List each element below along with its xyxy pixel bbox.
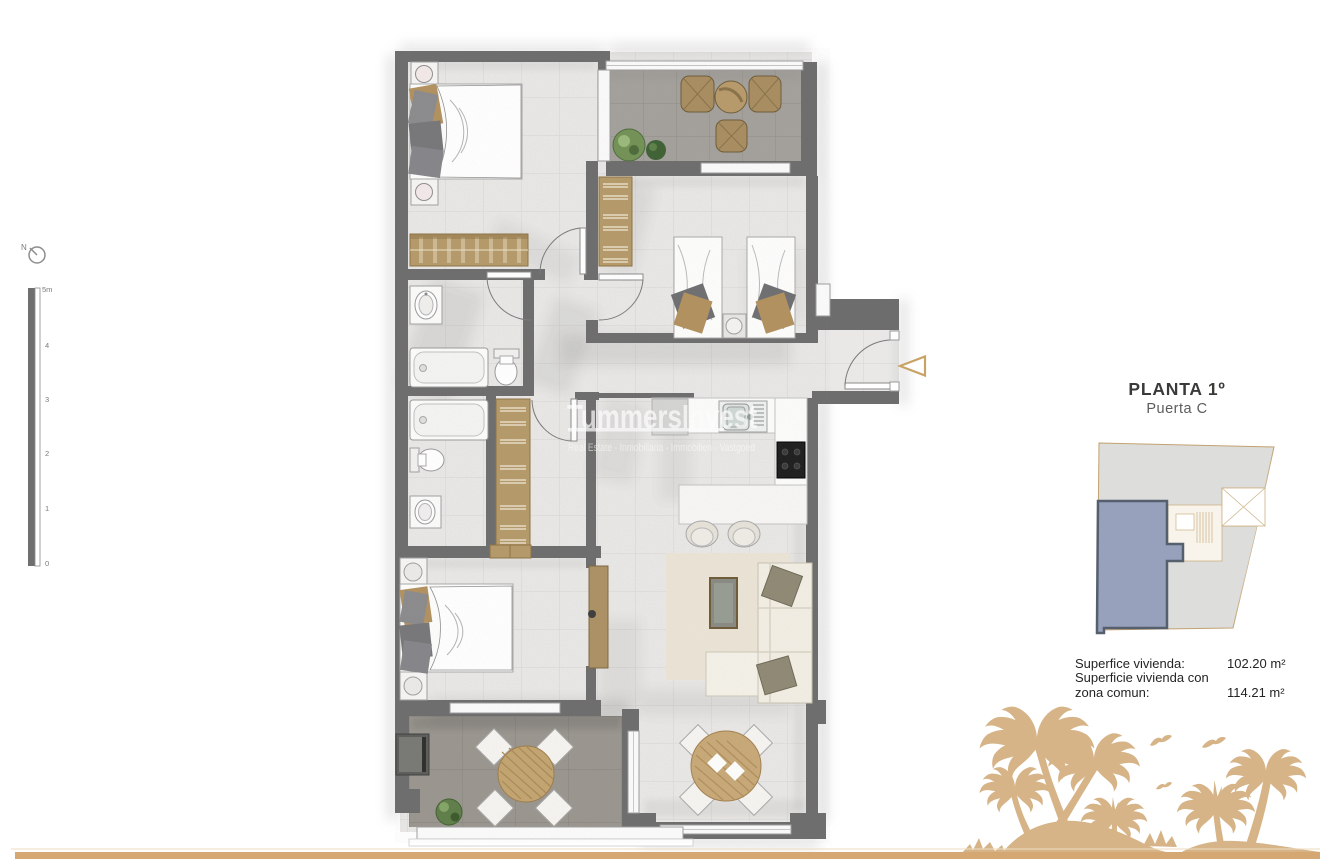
svg-text:5m: 5m <box>42 285 52 294</box>
svg-text:102.20 m²: 102.20 m² <box>1227 656 1286 671</box>
svg-text:1: 1 <box>45 504 49 513</box>
svg-text:2: 2 <box>45 449 49 458</box>
svg-text:Superficie vivienda con: Superficie vivienda con <box>1075 670 1209 685</box>
svg-text:4: 4 <box>45 341 49 350</box>
svg-text:zona comun:: zona comun: <box>1075 685 1149 700</box>
svg-text:0: 0 <box>45 559 49 568</box>
svg-text:Puerta C: Puerta C <box>1146 401 1207 417</box>
svg-text:PLANTA 1º: PLANTA 1º <box>1128 379 1225 399</box>
svg-text:114.21 m²: 114.21 m² <box>1227 685 1285 700</box>
svg-text:3: 3 <box>45 395 49 404</box>
svg-text:Superfice vivienda:: Superfice vivienda: <box>1075 656 1185 671</box>
svg-text:N: N <box>21 243 27 252</box>
